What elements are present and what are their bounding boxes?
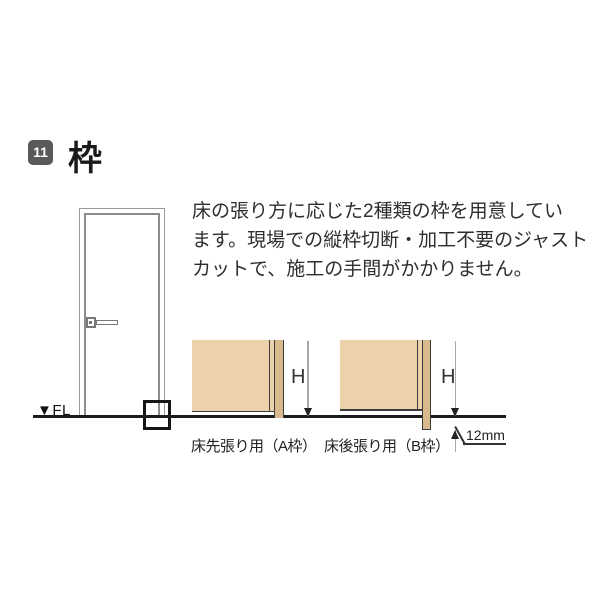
offset-leader-underline: [463, 443, 506, 445]
diagram-caption-a: 床先張り用（A枠）: [191, 435, 317, 456]
wall-bottom-line-b: [340, 409, 422, 411]
offset-dimension-label: 12mm: [466, 427, 505, 443]
dimension-arrow-down-icon: [304, 408, 312, 417]
section-number-badge: 11: [28, 140, 53, 165]
height-dimension-label-a: H: [291, 366, 305, 389]
vertical-frame-a: [274, 340, 284, 418]
door-handle-plate: [86, 317, 96, 328]
dimension-arrow-down-icon: [451, 408, 459, 417]
vertical-frame-b: [422, 340, 431, 430]
description-paragraph: 床の張り方に応じた2種類の枠を用意してい ます。現場での縦枠切断・加工不要のジャ…: [192, 197, 592, 284]
description-line: 床の張り方に応じた2種類の枠を用意してい: [192, 197, 592, 226]
door-handle-lever: [96, 320, 118, 325]
page-title: 枠: [68, 131, 103, 180]
catalog-page: 11 枠 床の張り方に応じた2種類の枠を用意してい ます。現場での縦枠切断・加工…: [0, 0, 600, 600]
wall-section-a: [192, 340, 269, 412]
floor-line: [33, 415, 506, 418]
diagram-caption-b: 床後張り用（B枠）: [324, 435, 450, 456]
wall-bottom-line-a: [192, 411, 274, 413]
door-panel-outline: [84, 213, 160, 417]
wall-section-b: [340, 340, 417, 410]
description-line: ます。現場での縦枠切断・加工不要のジャスト: [192, 226, 592, 255]
description-line: カットで、施工の手間がかかりません。: [192, 255, 592, 284]
door-handle-spindle: [89, 321, 92, 324]
height-dimension-line-a: [307, 341, 309, 416]
height-dimension-label-b: H: [441, 366, 455, 389]
